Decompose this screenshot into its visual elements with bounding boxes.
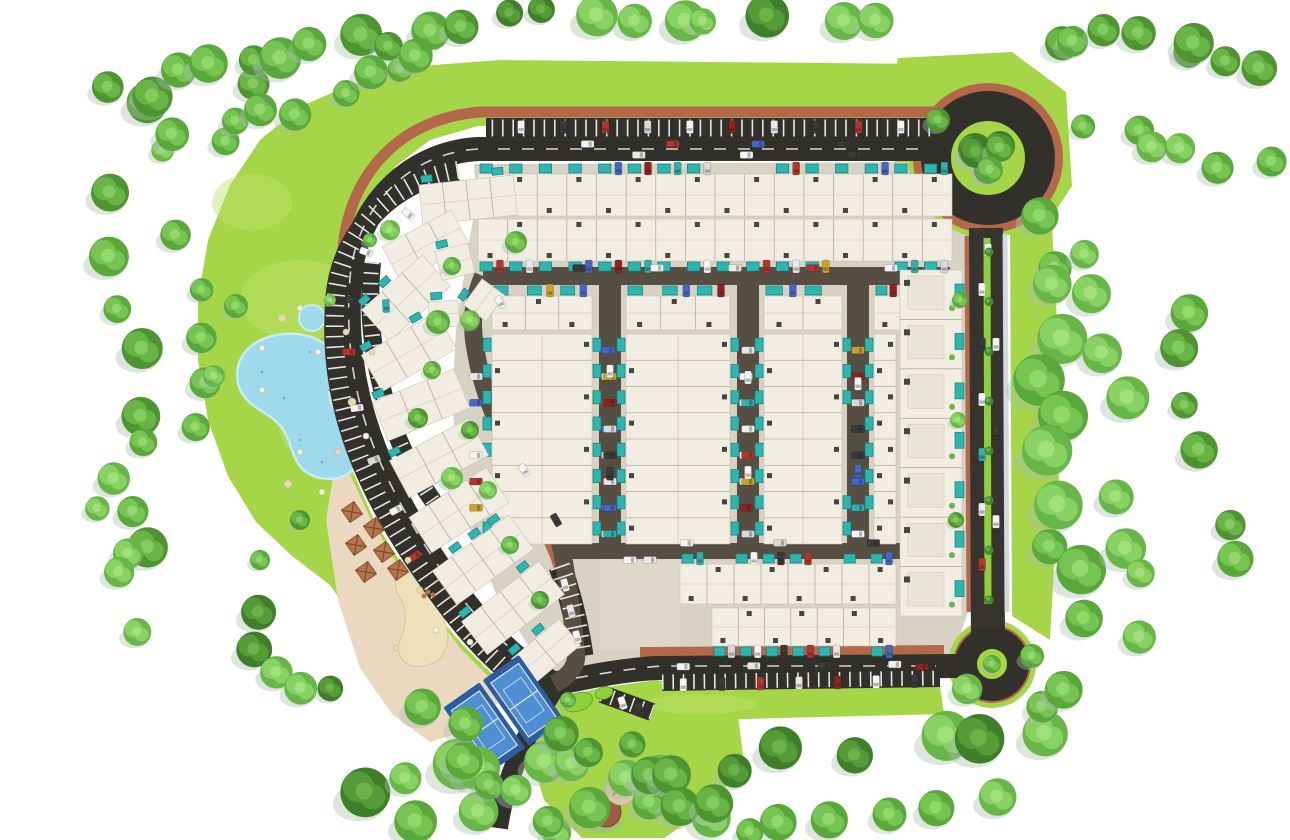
roof-vent [813, 177, 818, 182]
car-body [729, 265, 742, 272]
car-windshield [891, 292, 896, 295]
car-body [728, 645, 735, 658]
car [470, 478, 483, 485]
car [615, 260, 622, 273]
car [781, 645, 788, 658]
parasol [259, 345, 265, 351]
car [916, 664, 929, 671]
car [345, 296, 359, 305]
car-body [547, 284, 554, 297]
tree-canopy-highlight [771, 815, 783, 827]
tree-canopy-highlight [536, 4, 545, 13]
car-windshield [755, 663, 758, 668]
pool [593, 522, 601, 535]
car [573, 265, 586, 272]
median-palm [985, 397, 994, 406]
car-body [855, 121, 862, 134]
tree-canopy-highlight [365, 66, 377, 78]
car-windshield [993, 345, 998, 348]
tree-canopy-highlight [113, 566, 123, 576]
car-body [979, 338, 986, 351]
pool [819, 647, 830, 656]
pool [617, 496, 625, 509]
car [911, 260, 918, 273]
car [885, 552, 892, 565]
tree-canopy-highlight [837, 14, 850, 27]
car-body [796, 677, 803, 690]
roof-vent [784, 253, 789, 258]
pool [687, 164, 699, 173]
tree-canopy-highlight [512, 238, 519, 245]
car-windshield [923, 664, 926, 669]
roof-step [908, 276, 944, 309]
garden-shrub [949, 552, 955, 558]
car-windshield [758, 685, 763, 688]
tree-canopy-highlight [933, 115, 941, 123]
tree-canopy-highlight [1027, 651, 1035, 659]
tree-canopy-highlight [341, 88, 350, 97]
car [852, 504, 865, 511]
car-windshield [835, 683, 840, 686]
tree-canopy-highlight [1094, 345, 1108, 359]
tree-canopy-highlight [102, 81, 113, 92]
car-windshield [477, 453, 480, 458]
car-body [624, 557, 637, 564]
car [742, 531, 755, 538]
tree-canopy-highlight [627, 739, 636, 748]
car [742, 399, 755, 406]
pool [593, 391, 601, 404]
car [607, 365, 614, 378]
car [789, 284, 796, 297]
roof-vent [584, 447, 589, 452]
car [867, 540, 880, 547]
car [837, 141, 850, 148]
pool [736, 554, 747, 563]
parasol [335, 449, 341, 455]
car [470, 504, 483, 511]
roof-vent [784, 208, 789, 213]
car [763, 260, 770, 273]
car [624, 557, 637, 564]
pool [483, 391, 491, 404]
car-body [602, 121, 609, 134]
roof-vent [773, 638, 778, 643]
car-body [683, 284, 690, 297]
car-windshield [874, 683, 879, 686]
car [677, 663, 690, 670]
roof-vent [851, 596, 856, 601]
tree-canopy-highlight [195, 332, 205, 342]
roof-vent [629, 526, 634, 531]
lake-speckle [321, 461, 324, 464]
roof-vent [904, 478, 910, 484]
car-body [888, 661, 901, 668]
car [470, 452, 483, 459]
tree-canopy-highlight [383, 41, 393, 51]
tree-canopy-highlight [554, 727, 566, 739]
roof-vent [902, 253, 907, 258]
car-windshield [527, 268, 532, 271]
pool [747, 262, 759, 271]
roof-vent [904, 329, 910, 335]
pool [776, 164, 788, 173]
car-windshield [609, 348, 612, 353]
garden-shrub [949, 503, 955, 509]
roof-step [908, 375, 944, 408]
pool [767, 647, 778, 656]
roof-vent [706, 322, 711, 327]
car-body [771, 121, 778, 134]
tree-canopy-highlight [1252, 61, 1264, 73]
car [683, 284, 690, 297]
car-body [604, 426, 617, 433]
palm-canopy-highlight [986, 348, 990, 352]
parasol [343, 329, 349, 335]
tree-canopy-highlight [210, 372, 217, 379]
car-windshield [681, 686, 686, 689]
car-windshield [859, 531, 862, 536]
roof-vent [834, 342, 839, 347]
palm-canopy-highlight [986, 299, 990, 303]
roof-vent [815, 299, 820, 304]
parasol [433, 627, 439, 633]
tree-canopy-highlight [706, 796, 719, 809]
tree-canopy-highlight [230, 116, 239, 125]
car [666, 141, 679, 148]
playground-equipment [426, 590, 431, 595]
car [382, 299, 390, 312]
car-windshield [993, 523, 998, 526]
tree-canopy-highlight [448, 474, 455, 481]
car-body [834, 676, 841, 689]
tree-canopy-highlight [428, 366, 434, 372]
roof-vent [932, 222, 937, 227]
car-body [993, 338, 1000, 351]
car-body [382, 299, 390, 312]
tree-canopy-highlight [466, 426, 472, 432]
garden-shrub [949, 404, 955, 410]
car-body [604, 504, 617, 511]
tree-canopy-highlight [1266, 156, 1276, 166]
tree-canopy-highlight [1077, 611, 1090, 624]
car-windshield [855, 385, 860, 388]
car [873, 675, 880, 688]
roof-vent [665, 208, 670, 213]
house-block [483, 334, 601, 544]
median-palm [985, 297, 994, 306]
roof-vent [576, 177, 581, 182]
playground-equipment [431, 593, 436, 598]
roof-vent [878, 567, 883, 572]
parasol [369, 349, 375, 355]
car [581, 141, 594, 148]
car [470, 373, 483, 380]
tree-canopy-highlight [272, 50, 286, 64]
roof-vent [888, 447, 893, 452]
car-body [607, 365, 614, 378]
tree-canopy-highlight [1072, 560, 1089, 577]
tree-canopy-highlight [127, 505, 138, 516]
car [979, 448, 986, 461]
roof-vent [606, 208, 611, 213]
tree-canopy-highlight [172, 63, 184, 75]
roof-vent [754, 222, 759, 227]
car [526, 260, 533, 273]
car-body [804, 552, 811, 565]
tree-canopy-highlight [367, 237, 372, 242]
car-windshield [855, 152, 858, 157]
tree-canopy-highlight [145, 89, 159, 103]
car-body [979, 558, 986, 571]
roof-vent [873, 222, 878, 227]
car-windshield [705, 268, 710, 271]
roof-vent [495, 473, 500, 478]
car [496, 260, 503, 273]
car-windshield [993, 434, 998, 437]
car-body [742, 399, 755, 406]
car-windshield [759, 141, 762, 146]
car-body [852, 452, 865, 459]
tree-canopy-highlight [107, 472, 118, 483]
tree-canopy-highlight [536, 596, 542, 602]
car [897, 121, 904, 134]
car-windshield [979, 566, 984, 569]
tree-canopy-highlight [745, 826, 754, 835]
car [752, 141, 765, 148]
car [729, 265, 742, 272]
car-body [745, 466, 752, 479]
pool [836, 164, 848, 173]
pool [421, 175, 433, 183]
roof-vent [877, 421, 882, 426]
tree-canopy-highlight [1118, 541, 1132, 555]
car-body [979, 503, 986, 516]
tree-canopy-highlight [103, 185, 116, 198]
car-body [729, 121, 736, 134]
car [852, 399, 865, 406]
car [796, 677, 803, 690]
car [993, 427, 1000, 440]
roof-vent [770, 567, 775, 572]
roof-vent [877, 473, 882, 478]
car-windshield [745, 474, 750, 477]
car-windshield [859, 426, 862, 431]
car [547, 284, 554, 297]
pool [617, 443, 625, 456]
palm-canopy-highlight [986, 249, 990, 253]
roof-vent [629, 473, 634, 478]
car-body [793, 162, 800, 175]
car-body [718, 678, 725, 691]
parasol [315, 349, 321, 355]
pool [755, 364, 763, 377]
tree-canopy-highlight [134, 341, 148, 355]
tree-canopy-highlight [1174, 142, 1184, 152]
parasol [297, 305, 303, 311]
median-palm [985, 248, 994, 257]
median-palm [985, 496, 994, 505]
car [834, 676, 841, 689]
tree-canopy-highlight [220, 136, 229, 145]
tree-canopy-highlight [985, 165, 994, 174]
car [745, 371, 752, 384]
car-body [345, 296, 359, 305]
car-windshield [684, 292, 689, 295]
car [911, 675, 918, 688]
pool [740, 647, 751, 656]
car-body [882, 162, 889, 175]
car-windshield [616, 268, 621, 271]
pool [755, 338, 763, 351]
roof-vent [902, 208, 907, 213]
tree-canopy-highlight [772, 740, 787, 755]
car-windshield [882, 170, 887, 173]
car [993, 338, 1000, 351]
tree-canopy-highlight [407, 813, 422, 828]
palm-canopy-highlight [986, 597, 990, 601]
pool [617, 391, 625, 404]
car-body [742, 426, 755, 433]
parasol [259, 387, 265, 393]
car-windshield [580, 265, 583, 270]
tree-canopy-highlight [1133, 631, 1144, 642]
tree-canopy-highlight [303, 37, 315, 49]
tree-canopy-highlight [1045, 277, 1058, 290]
car [717, 284, 724, 297]
pool [599, 262, 611, 271]
palm-canopy-highlight [986, 498, 990, 502]
pool [755, 417, 763, 430]
car-windshield [781, 653, 786, 656]
roof-step [908, 424, 944, 457]
tree-canopy-highlight [1146, 141, 1156, 151]
car-windshield [607, 372, 612, 375]
car-windshield [874, 540, 877, 545]
car [750, 552, 757, 565]
pool [924, 164, 936, 173]
car-windshield [781, 540, 784, 545]
roof-vent [932, 177, 937, 182]
tree-canopy-highlight [537, 754, 551, 768]
tree-canopy-highlight [988, 660, 994, 666]
roof-vent [834, 499, 839, 504]
pool [617, 469, 625, 482]
tree-canopy-highlight [252, 605, 264, 617]
pool [658, 164, 670, 173]
car [518, 121, 525, 134]
garden-shrub [949, 354, 955, 360]
roof-step [908, 325, 944, 358]
pool [843, 391, 851, 404]
car [793, 260, 800, 273]
car-body [781, 645, 788, 658]
car-windshield [749, 426, 752, 431]
car [754, 645, 761, 658]
pool [527, 286, 541, 295]
car-body [993, 515, 1000, 528]
house-block [617, 334, 739, 544]
pool [731, 443, 739, 456]
tree-canopy-highlight [254, 103, 265, 114]
car [807, 645, 814, 658]
pool [955, 333, 964, 349]
tree-canopy-highlight [822, 813, 835, 826]
tree-canopy-highlight [1067, 35, 1078, 46]
roof-vent [767, 473, 772, 478]
pool [593, 469, 601, 482]
car-body [666, 141, 679, 148]
pool [714, 647, 725, 656]
car-windshield [718, 292, 723, 295]
tree-canopy-highlight [247, 642, 259, 654]
tree-canopy-highlight [759, 7, 774, 22]
tree-canopy-highlight [325, 683, 334, 692]
car [742, 347, 755, 354]
roof-vent [797, 596, 802, 601]
tree-canopy-highlight [1135, 568, 1145, 578]
roof-vent [754, 177, 759, 182]
pool [755, 443, 763, 456]
car-windshield [684, 664, 687, 669]
roof-vent [576, 222, 581, 227]
car-windshield [794, 170, 799, 173]
roof-vent [695, 177, 700, 182]
pool [865, 338, 873, 351]
car-body [677, 663, 690, 670]
parasol [278, 314, 286, 322]
roof-vent [834, 447, 839, 452]
car-body [852, 478, 865, 485]
tree-canopy-highlight [415, 700, 427, 712]
car [602, 347, 615, 354]
parasol [348, 398, 356, 406]
car-windshield [749, 348, 752, 353]
pool [731, 338, 739, 351]
car [632, 152, 645, 159]
pool [510, 164, 522, 173]
car-body [604, 399, 617, 406]
car-windshield [611, 426, 614, 431]
roof-vent [882, 322, 887, 327]
tree-canopy-highlight [589, 7, 603, 21]
car [740, 152, 753, 159]
pool [731, 496, 739, 509]
tree-canopy-highlight [953, 517, 958, 522]
car-windshield [640, 152, 643, 157]
tree-canopy-highlight [270, 666, 281, 677]
roof-vent [536, 299, 541, 304]
palm-canopy-highlight [986, 547, 990, 551]
car-windshield [823, 268, 828, 271]
roof-vent [547, 208, 552, 213]
tree-canopy-highlight [1078, 122, 1086, 130]
car-windshield [611, 505, 614, 510]
car-body [607, 467, 614, 480]
car-windshield [942, 268, 947, 271]
tree-canopy-highlight [957, 297, 962, 302]
car-windshield [674, 141, 677, 146]
car-body [941, 162, 948, 175]
garden-shrub [949, 602, 955, 608]
car-body [890, 284, 897, 297]
tree-canopy-highlight [1056, 682, 1069, 695]
roof-vent [629, 368, 634, 373]
pool [843, 496, 851, 509]
car-windshield [886, 560, 891, 563]
car [882, 162, 889, 175]
car [804, 552, 811, 565]
